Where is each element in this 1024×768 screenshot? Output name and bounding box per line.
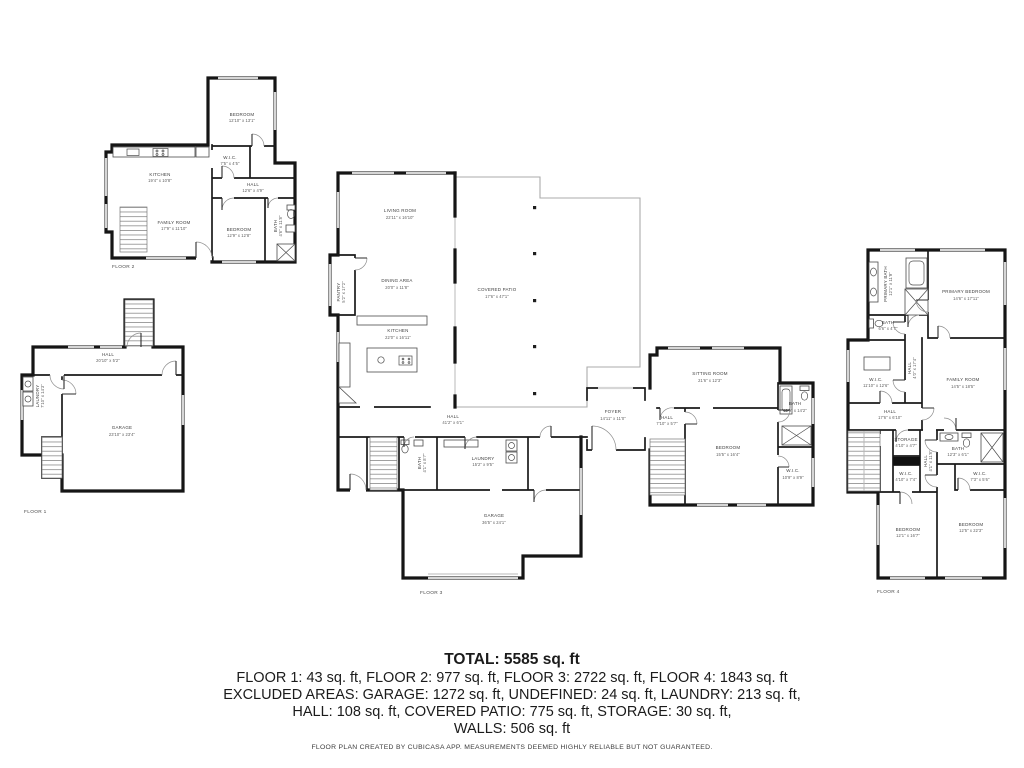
garage-dims: 36'5" x 24'1": [482, 520, 506, 525]
toilet-icon: [869, 319, 874, 328]
bedroom1-dims: 12'1" x 16'7": [896, 533, 920, 538]
sink-icon: [286, 225, 295, 232]
primary-bedroom-dims: 14'6" x 17'11": [953, 296, 979, 301]
kitchen-dims: 19'4" x 10'8": [148, 178, 172, 183]
hall-dims: 12'6" x 4'9": [242, 188, 264, 193]
bath2-label: BATH: [789, 401, 801, 406]
floor3-stairs: [370, 437, 397, 490]
sitting-room-dims: 21'6" x 12'3": [698, 378, 722, 383]
bedroom2-dims: 12'5" x 22'3": [959, 528, 983, 533]
floor-1-plan: HALL 20'10" x 5'2" LAUNDRY 7'10" x 14'3"…: [22, 300, 183, 515]
garage-dims: 23'10" x 23'4": [109, 432, 136, 437]
laundry-label: LAUNDRY: [472, 456, 495, 461]
floor-4-plan: PRIMARY BATH 12'1" x 11'9" PRIMARY BEDRO…: [848, 250, 1005, 595]
floor3-kitchen-fixtures: [339, 316, 427, 403]
floor2-stairs: [120, 207, 147, 252]
hall2-dims: 7'10" x 5'7": [656, 421, 678, 426]
wic-dims: 7'5" x 4'5": [221, 161, 240, 166]
laundry-dims: 15'2" x 9'5": [472, 462, 494, 467]
shower-icon: [981, 433, 1003, 462]
floor2-label: FLOOR 2: [112, 264, 135, 270]
hall-label: HALL: [247, 182, 259, 187]
kitchen-island-icon: [367, 348, 417, 372]
family-room-label: FAMILY ROOM: [157, 220, 190, 225]
toilet-icon: [800, 386, 809, 391]
kitchen-dims: 22'0" x 16'11": [385, 335, 411, 340]
covered-patio-outline: [455, 177, 640, 407]
bath1-label: BATH: [882, 320, 894, 325]
bedroom-label: BEDROOM: [716, 445, 741, 450]
primary-bedroom-label: PRIMARY BEDROOM: [942, 289, 990, 294]
sink-icon: [414, 440, 423, 446]
garage-label: GARAGE: [484, 513, 504, 518]
family-room-label: FAMILY ROOM: [946, 377, 979, 382]
wic-label: W.I.C.: [223, 155, 236, 160]
floor1-stairs-lower: [42, 437, 62, 478]
wic-label: W.I.C.: [786, 468, 799, 473]
hall-upper-dims: 4'0" x 17'4": [912, 357, 917, 379]
floor4-label: FLOOR 4: [877, 589, 900, 595]
floor-areas-text: FLOOR 1: 43 sq. ft, FLOOR 2: 977 sq. ft,…: [236, 670, 787, 686]
hall-dims: 20'10" x 5'2": [96, 358, 120, 363]
washer-dryer-icon: [23, 377, 33, 406]
bedroom2-label: BEDROOM: [959, 522, 984, 527]
chimney-block: [893, 457, 920, 465]
area-summary: TOTAL: 5585 sq. ft FLOOR 1: 43 sq. ft, F…: [223, 651, 801, 751]
dining-area-dims: 20'0" x 11'8": [385, 285, 409, 290]
floorplan-page: BEDROOM 12'10" x 13'1" W.I.C. 7'5" x 4'5…: [0, 0, 1024, 768]
floor-2-plan: BEDROOM 12'10" x 13'1" W.I.C. 7'5" x 4'5…: [106, 78, 295, 270]
hall-label: HALL: [102, 352, 114, 357]
wic1-label: W.I.C.: [869, 377, 882, 382]
foyer-dims: 14'11" x 11'0": [600, 416, 626, 421]
hall-label: HALL: [447, 414, 459, 419]
floor4-bath2-fixtures: [940, 433, 1003, 462]
shower-icon: [277, 244, 295, 261]
garage-label: GARAGE: [112, 425, 132, 430]
covered-patio-dims: 17'6" x 47'1": [485, 294, 509, 299]
floor2-kitchen-counter-icon: [113, 147, 209, 157]
foyer-label: FOYER: [605, 409, 622, 414]
wic2-dims: 4'10" x 7'4": [895, 477, 917, 482]
bedroom2-label: BEDROOM: [227, 227, 252, 232]
excluded-areas-text-2: HALL: 108 sq. ft, COVERED PATIO: 775 sq.…: [292, 704, 731, 720]
hall-dims: 17'6" x 6'10": [878, 415, 902, 420]
living-room-dims: 22'11" x 16'10": [386, 215, 415, 220]
floor3-bath2-fixtures: [780, 386, 811, 445]
floor3-label: FLOOR 3: [420, 590, 443, 596]
hall-label: HALL: [884, 409, 896, 414]
storage-label: STORAGE: [894, 437, 917, 442]
bedroom-dims: 12'10" x 13'1": [229, 118, 256, 123]
bath2-label: BATH: [952, 446, 964, 451]
wic-dims: 10'9" x 8'9": [782, 475, 804, 480]
family-room-dims: 17'9" x 11'10": [161, 226, 187, 231]
walls-area-text: WALLS: 506 sq. ft: [454, 721, 570, 737]
wic3-dims: 7'3" x 5'6": [971, 477, 990, 482]
family-room-dims: 14'5" x 18'5": [951, 384, 975, 389]
hall-lower-dims: 4'1" x 11'8": [928, 450, 933, 472]
pantry-dims: 5'2" x 17'2": [341, 281, 346, 303]
hall-dims: 41'2" x 6'1": [442, 420, 464, 425]
floor3-rightwing-stairs: [650, 439, 685, 495]
bedroom2-dims: 12'9" x 12'8": [227, 233, 251, 238]
bedroom1-label: BEDROOM: [896, 527, 921, 532]
sitting-room-label: SITTING ROOM: [692, 371, 727, 376]
floorplan-image: BEDROOM 12'10" x 13'1" W.I.C. 7'5" x 4'5…: [0, 0, 1024, 768]
primary-bath-fixtures: [869, 258, 928, 315]
total-area-text: TOTAL: 5585 sq. ft: [444, 651, 580, 668]
bath2-dims: 10'9" x 14'2": [783, 408, 807, 413]
wic3-label: W.I.C.: [973, 471, 986, 476]
toilet-icon: [962, 433, 971, 438]
shower-icon: [782, 426, 811, 445]
covered-patio-label: COVERED PATIO: [478, 287, 517, 292]
bedroom-dims: 15'5" x 16'4": [716, 452, 740, 457]
wic-island-icon: [864, 357, 890, 370]
hall2-label: HALL: [661, 415, 673, 420]
primary-bath-dims: 12'1" x 11'9": [888, 272, 893, 296]
bath-dims: 4'1" x 8'7": [422, 453, 427, 472]
disclaimer-text: FLOOR PLAN CREATED BY CUBICASA APP. MEAS…: [311, 744, 712, 751]
kitchen-label: KITCHEN: [149, 172, 170, 177]
floor-3-plan: LIVING ROOM 22'11" x 16'10" DINING AREA …: [330, 173, 813, 596]
storage-dims: 4'10" x 4'7": [895, 443, 917, 448]
bath2-dims: 12'3" x 6'1": [947, 452, 969, 457]
bedroom-label: BEDROOM: [230, 112, 255, 117]
bath1-dims: 6'6" x 4'7": [879, 326, 898, 331]
living-room-label: LIVING ROOM: [384, 208, 416, 213]
dining-area-label: DINING AREA: [381, 278, 412, 283]
wic1-dims: 11'10" x 12'6": [863, 383, 889, 388]
laundry-dims: 7'10" x 14'3": [40, 384, 45, 408]
kitchen-label: KITCHEN: [387, 328, 408, 333]
excluded-areas-text-1: EXCLUDED AREAS: GARAGE: 1272 sq. ft, UND…: [223, 687, 801, 703]
wic2-label: W.I.C.: [899, 471, 912, 476]
floor1-label: FLOOR 1: [24, 509, 47, 515]
bath-dims: 4'6" x 11'8": [278, 215, 283, 237]
